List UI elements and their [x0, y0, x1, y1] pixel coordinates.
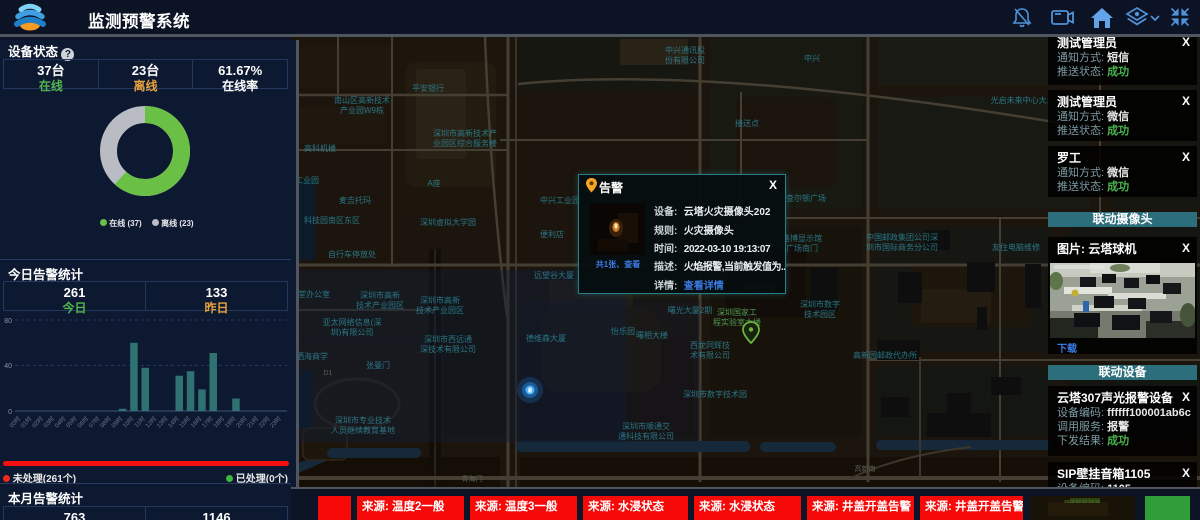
- svg-text:德维森大厦: 德维森大厦: [526, 333, 566, 343]
- svg-text:深圳市高新: 深圳市高新: [420, 295, 460, 305]
- svg-text:格博显示馆: 格博显示馆: [782, 233, 822, 243]
- svg-text:曙相大楼: 曙相大楼: [636, 330, 668, 340]
- svg-text:02时: 02时: [30, 415, 45, 430]
- svg-text:01时: 01时: [19, 415, 34, 430]
- svg-text:广场南门: 广场南门: [786, 243, 818, 253]
- svg-text:17时: 17时: [200, 415, 215, 430]
- svg-text:产业园W9栋: 产业园W9栋: [340, 105, 384, 115]
- svg-text:00时: 00时: [7, 415, 22, 430]
- svg-text:光启未来中心大...: 光启未来中心大...: [991, 95, 1054, 105]
- svg-text:11时: 11时: [132, 415, 146, 429]
- svg-text:深圳市数字: 深圳市数字: [800, 299, 840, 309]
- svg-text:14时: 14时: [166, 415, 181, 430]
- svg-text:人员继续教育基地: 人员继续教育基地: [331, 425, 395, 435]
- svg-text:中兴: 中兴: [804, 53, 820, 63]
- svg-text:深圳市高新技术产: 深圳市高新技术产: [433, 128, 497, 138]
- svg-text:圳市国际商务分公司: 圳市国际商务分公司: [866, 242, 938, 252]
- svg-text:16时: 16时: [189, 415, 204, 430]
- svg-text:深圳市专业技术: 深圳市专业技术: [335, 415, 391, 425]
- svg-text:青海门: 青海门: [462, 474, 483, 483]
- svg-text:08时: 08时: [98, 415, 113, 430]
- svg-text:圳)有限公司: 圳)有限公司: [331, 327, 374, 337]
- svg-text:便利店: 便利店: [540, 229, 564, 239]
- svg-text:份有限公司: 份有限公司: [665, 55, 705, 65]
- svg-text:张曼门: 张曼门: [366, 360, 390, 370]
- svg-text:深圳市西远通: 深圳市西远通: [424, 334, 472, 344]
- svg-text:2022-03-10 19:13: 2022-03-10 19:13: [1064, 499, 1100, 504]
- svg-text:技术产业园区: 技术产业园区: [356, 300, 404, 310]
- svg-text:40: 40: [4, 363, 12, 370]
- svg-text:12时: 12时: [143, 415, 158, 430]
- svg-text:技术产业园区: 技术产业园区: [416, 305, 464, 315]
- svg-text:80: 80: [4, 318, 12, 325]
- svg-text:查尔顿广场: 查尔顿广场: [786, 193, 826, 203]
- svg-text:A座: A座: [427, 178, 440, 188]
- svg-text:高科机楼: 高科机楼: [304, 143, 336, 153]
- svg-text:23时: 23时: [268, 415, 283, 430]
- svg-text:中国邮政集团公司深: 中国邮政集团公司深: [866, 232, 938, 242]
- svg-text:高新南: 高新南: [855, 464, 876, 473]
- svg-text:深圳市数字技术园: 深圳市数字技术园: [683, 389, 747, 399]
- svg-text:亚太网络信息(深: 亚太网络信息(深: [323, 317, 382, 327]
- svg-text:19时: 19时: [223, 415, 238, 430]
- svg-text:中兴通讯股: 中兴通讯股: [665, 45, 705, 55]
- svg-text:13时: 13时: [155, 415, 170, 430]
- svg-text:深圳虚拟大学园: 深圳虚拟大学园: [420, 217, 476, 227]
- svg-text:0: 0: [8, 409, 12, 416]
- svg-text:技术园区: 技术园区: [804, 309, 836, 319]
- svg-text:10时: 10时: [121, 415, 136, 430]
- svg-text:03时: 03时: [41, 415, 56, 430]
- svg-text:06时: 06时: [75, 415, 90, 430]
- svg-text:15时: 15时: [177, 415, 192, 430]
- svg-text:西龙同辉技: 西龙同辉技: [690, 340, 730, 350]
- svg-text:科技园南区东区: 科技园南区东区: [304, 215, 360, 225]
- svg-text:09时: 09时: [109, 415, 124, 430]
- svg-text:深圳国家工: 深圳国家工: [717, 307, 757, 317]
- svg-text:18时: 18时: [211, 415, 226, 430]
- svg-text:远望谷大厦: 远望谷大厦: [534, 270, 574, 280]
- svg-text:自行车停放处: 自行车停放处: [328, 249, 376, 259]
- svg-text:通科技有限公司: 通科技有限公司: [618, 431, 674, 441]
- svg-text:04时: 04时: [53, 415, 68, 430]
- svg-text:曙光大厦2期: 曙光大厦2期: [668, 305, 712, 315]
- svg-text:术有限公司: 术有限公司: [690, 350, 730, 360]
- svg-text:21时: 21时: [245, 415, 260, 430]
- svg-text:22时: 22时: [257, 415, 272, 430]
- svg-text:05时: 05时: [64, 415, 79, 430]
- svg-text:深圳市顺通交: 深圳市顺通交: [622, 421, 670, 431]
- svg-text:平安银行: 平安银行: [412, 83, 444, 93]
- svg-text:D1: D1: [324, 370, 333, 377]
- svg-text:中兴工业园: 中兴工业园: [540, 195, 580, 205]
- svg-text:深技术有限公司: 深技术有限公司: [420, 344, 476, 354]
- svg-text:接送点: 接送点: [735, 118, 759, 128]
- svg-text:07时: 07时: [87, 415, 102, 430]
- svg-text:怡乐园: 怡乐园: [611, 326, 635, 336]
- svg-text:2: 2: [528, 388, 532, 395]
- svg-text:20时: 20时: [234, 415, 249, 430]
- svg-text:友住电脑维修: 友住电脑维修: [992, 242, 1040, 252]
- svg-text:南山区高新技术: 南山区高新技术: [334, 95, 390, 105]
- svg-text:业园区综合服务楼: 业园区综合服务楼: [433, 138, 497, 148]
- svg-text:高新园邮政代办所: 高新园邮政代办所: [853, 350, 917, 360]
- svg-text:栖海商学: 栖海商学: [296, 351, 328, 361]
- svg-text:深圳市高新: 深圳市高新: [360, 290, 400, 300]
- svg-text:麦吉托玛: 麦吉托玛: [339, 195, 371, 205]
